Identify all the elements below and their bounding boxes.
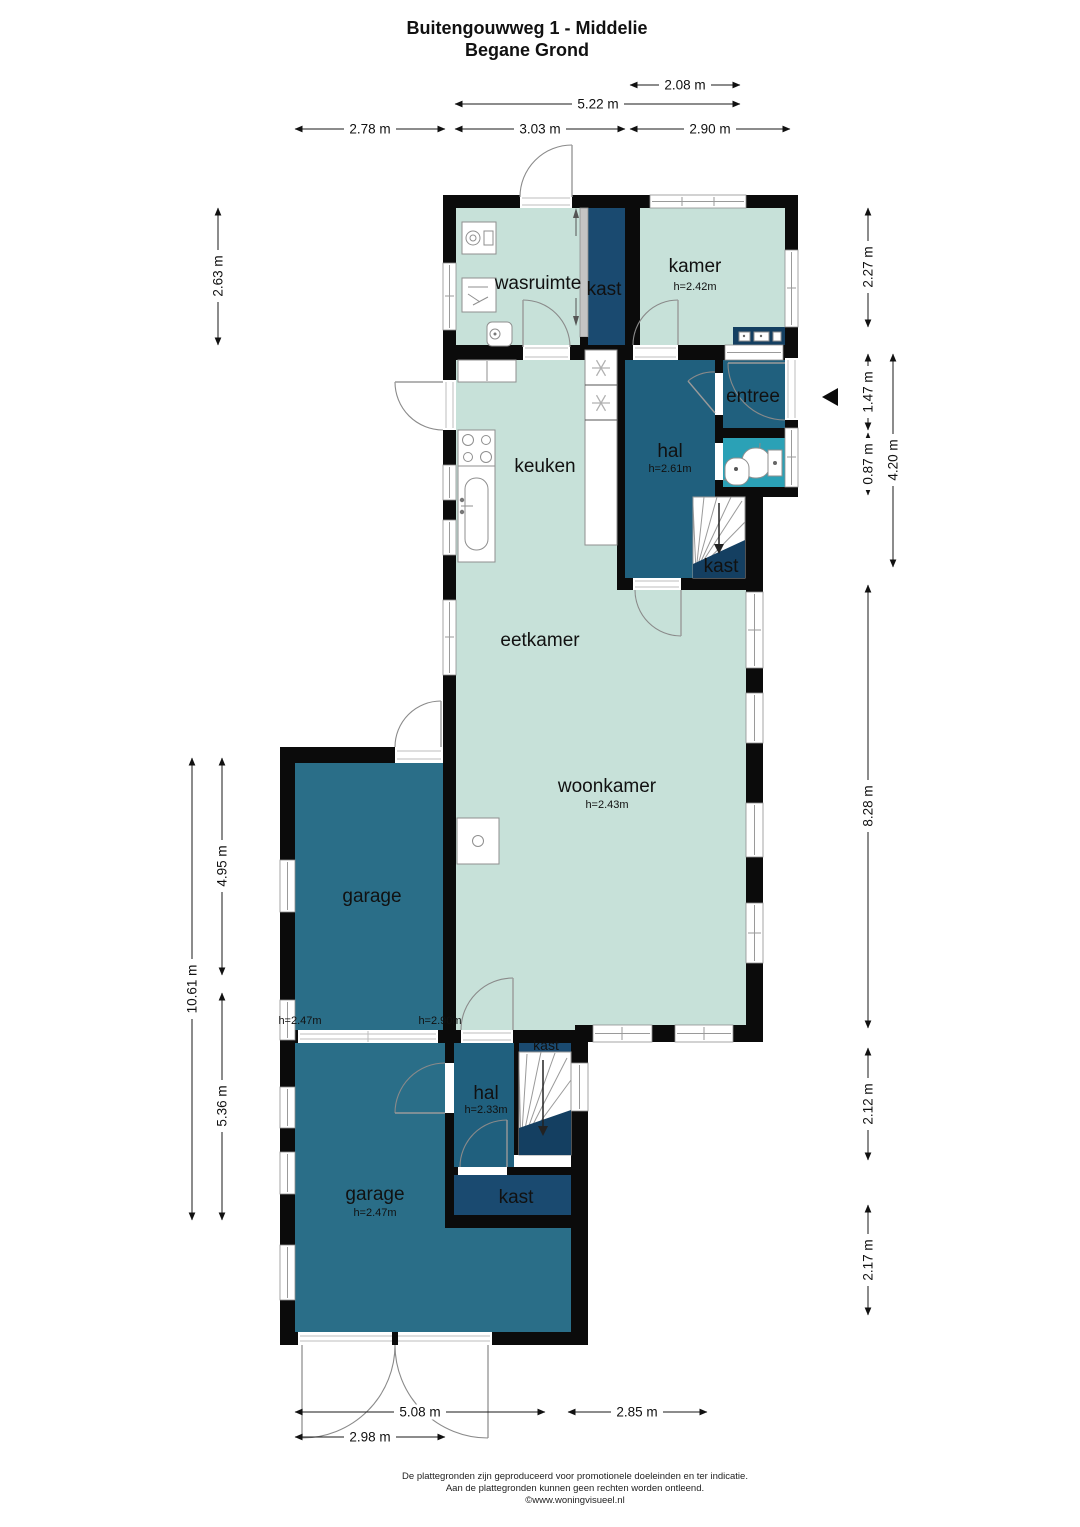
label-garage2-height: h=2.47m: [353, 1207, 396, 1219]
front-door: [785, 358, 798, 420]
utility-sink-icon: [462, 278, 496, 312]
window: [785, 250, 798, 327]
window: [280, 1087, 295, 1128]
door-hal2-kast: [458, 1167, 507, 1175]
dim-right-7: 2.17 m: [861, 1205, 876, 1315]
dim-bottom-1: 5.08 m: [295, 1405, 545, 1420]
door-wasruimte-keuken: [523, 345, 570, 360]
door-kamer: [633, 345, 678, 360]
label-hal: hal: [657, 441, 682, 462]
svg-text:1.47 m: 1.47 m: [861, 371, 876, 412]
floorplan-page: Buitengouwweg 1 - Middelie Begane Grond: [0, 0, 1080, 1527]
dim-right-6: 2.12 m: [861, 1048, 876, 1160]
label-kast-stairs: kast: [704, 556, 740, 577]
label-garage2: garage: [345, 1184, 404, 1205]
window: [785, 428, 798, 487]
label-garage1-height-right: h=2.90m: [418, 1015, 461, 1027]
door-wasruimte-exterior: [520, 195, 572, 208]
dim-bottom-2: 2.85 m: [568, 1405, 707, 1420]
label-wasruimte: wasruimte: [494, 273, 582, 294]
svg-text:2.98 m: 2.98 m: [349, 1430, 390, 1445]
label-garage1-height-left: h=2.47m: [278, 1015, 321, 1027]
dim-left-1: 2.63 m: [211, 208, 226, 345]
dim-right-5: 8.28 m: [861, 585, 876, 1028]
meter-icons: [739, 332, 781, 341]
footer-line-2: Aan de plattegronden kunnen geen rechten…: [446, 1483, 704, 1494]
window: [443, 600, 456, 675]
svg-text:10.61 m: 10.61 m: [185, 965, 200, 1014]
svg-text:8.28 m: 8.28 m: [861, 785, 876, 826]
window: [675, 1025, 733, 1042]
room-woonkamer: [617, 590, 746, 1028]
dim-top-2: 5.22 m: [455, 97, 740, 112]
label-kamer-height: h=2.42m: [673, 281, 716, 293]
kitchen-counter: [458, 360, 516, 382]
label-woonkamer: woonkamer: [557, 776, 657, 797]
door-hal-toilet: [715, 443, 723, 480]
dim-left-4: 5.36 m: [215, 993, 230, 1220]
window: [725, 345, 783, 360]
label-kast-onder: kast: [499, 1187, 535, 1208]
svg-text:2.08 m: 2.08 m: [664, 78, 705, 93]
floorplan-canvas: Buitengouwweg 1 - Middelie Begane Grond: [0, 0, 1080, 1527]
svg-text:2.17 m: 2.17 m: [861, 1239, 876, 1280]
page-title: Buitengouwweg 1 - Middelie: [406, 18, 647, 38]
label-eetkamer: eetkamer: [500, 630, 580, 651]
dim-right-4: 4.20 m: [886, 354, 901, 567]
window: [280, 1245, 295, 1300]
svg-text:5.08 m: 5.08 m: [399, 1405, 440, 1420]
window: [280, 1152, 295, 1194]
fridge-column: [585, 350, 617, 545]
dim-right-1: 2.27 m: [861, 208, 876, 327]
door-hal-eetkamer: [633, 578, 681, 590]
label-kast-boven-trap: kast: [533, 1037, 559, 1053]
svg-text:5.36 m: 5.36 m: [215, 1085, 230, 1126]
footer-line-1: De plattegronden zijn geproduceerd voor …: [402, 1471, 748, 1482]
window: [571, 1063, 588, 1111]
door-hal-entree: [715, 373, 723, 415]
svg-text:5.22 m: 5.22 m: [577, 97, 618, 112]
svg-text:0.87 m: 0.87 m: [861, 443, 876, 484]
svg-text:2.78 m: 2.78 m: [349, 122, 390, 137]
label-garage1: garage: [342, 886, 401, 907]
window: [746, 903, 763, 963]
svg-text:2.63 m: 2.63 m: [211, 255, 226, 296]
label-hal-height: h=2.61m: [648, 463, 691, 475]
window: [443, 263, 456, 330]
svg-text:2.27 m: 2.27 m: [861, 246, 876, 287]
boiler-icon: [487, 322, 512, 346]
svg-text:2.90 m: 2.90 m: [689, 122, 730, 137]
svg-text:4.20 m: 4.20 m: [886, 439, 901, 480]
window: [746, 592, 763, 668]
svg-text:2.85 m: 2.85 m: [616, 1405, 657, 1420]
label-keuken: keuken: [514, 456, 575, 477]
dim-right-2: 1.47 m: [861, 354, 876, 430]
window: [280, 860, 295, 912]
door-keuken-exterior: [443, 380, 456, 430]
room-fills: [295, 208, 785, 1332]
door-garage1: [395, 747, 443, 763]
washer-icon: [462, 222, 496, 254]
footer: De plattegronden zijn geproduceerd voor …: [402, 1471, 748, 1506]
dim-right-3: 0.87 m: [861, 433, 876, 495]
dim-bottom-3: 2.98 m: [295, 1430, 445, 1445]
window: [443, 520, 456, 555]
page-subtitle: Begane Grond: [465, 40, 589, 60]
svg-text:4.95 m: 4.95 m: [215, 845, 230, 886]
door-woonkamer-hal2: [461, 1030, 513, 1043]
label-entree: entree: [726, 386, 780, 407]
dim-left-3: 10.61 m: [185, 758, 200, 1220]
dim-left-2: 4.95 m: [215, 758, 230, 975]
window: [650, 195, 746, 208]
label-hal2: hal: [473, 1083, 498, 1104]
dim-top-4: 3.03 m: [455, 122, 625, 137]
fireplace-icon: [457, 818, 499, 864]
washbasin-icon: [725, 458, 749, 485]
window: [443, 465, 456, 500]
dim-top-3: 2.78 m: [295, 122, 445, 137]
label-kamer: kamer: [669, 256, 722, 277]
door-hal2-garage2: [445, 1063, 454, 1113]
dim-top-5: 2.90 m: [630, 122, 790, 137]
window: [746, 803, 763, 857]
svg-text:3.03 m: 3.03 m: [519, 122, 560, 137]
label-hal2-height: h=2.33m: [464, 1104, 507, 1116]
sink-icon: [458, 466, 495, 562]
svg-text:2.12 m: 2.12 m: [861, 1083, 876, 1124]
window: [593, 1025, 652, 1042]
window: [746, 693, 763, 743]
footer-copyright: ©www.woningvisueel.nl: [525, 1495, 624, 1506]
label-woonkamer-height: h=2.43m: [585, 799, 628, 811]
stairs-lower: [519, 1052, 571, 1155]
dim-top-1: 2.08 m: [630, 78, 740, 93]
label-kast-top: kast: [587, 279, 623, 300]
stove-icon: [458, 430, 495, 466]
entrance-arrow-icon: [822, 388, 838, 406]
